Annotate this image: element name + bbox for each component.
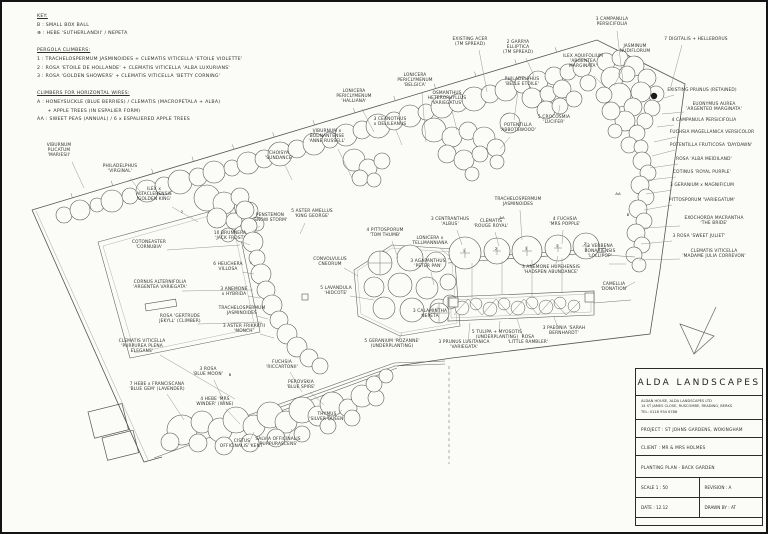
leader-line [72,162,84,188]
plant-label: 3 ANEMONE HUPEHENSIS'HADSPEN ABUNDANCE' [522,264,580,275]
leader-line [248,296,260,298]
lawn-side-bed-blob [312,358,328,374]
plant-label: 2 GARRYAELLIPTICA(7M SPREAD) [503,39,533,55]
plot-boundary-left-inner [36,211,148,460]
client-field: CLIENT : MR & MRS HOLMES [636,438,762,456]
fence-post-ticks-tick [474,72,475,77]
corner-bed-blob [608,124,622,138]
north-arrow-head [680,324,714,354]
plant-label: 3 VERBENABONARIENSIS'LOLLIPOP' [585,243,616,259]
plant-label: 3 ANEMONEx HYBRIDA [220,286,247,297]
plant-label: EXISTING ACER(7M SPREAD) [453,36,488,47]
plant-label: CLEMATIS VITICELLA'PURPUREA PLENAELEGANS… [119,338,166,354]
espalier-post-left [449,298,458,307]
plant-label: 7 DIGITALIS + HELLEBORUS [664,36,728,42]
island-bed-plants-blob [364,277,384,297]
fence-post-ticks-tick [232,144,233,149]
top-border-bed-blob [101,190,123,212]
plant-label: COTONEASTER'CORNUBIA' [132,239,166,250]
key-line: KEY: [37,13,243,22]
leader-line [396,130,402,145]
leader-line [479,50,487,92]
plant-label: CLEMATIS VITICELLA'MADAME JULIA CORREVON… [682,248,745,259]
plant-label: 3 ROSA'BLUE MOON' [193,366,223,377]
title-block: ALDA LANDSCAPES ALDAN HOUSE, ALDA LANDSC… [635,368,763,526]
plant-label: 5 TULIPA + MYOSOTIS(UNDERPLANTING) [472,329,522,340]
shrub-cluster-c-blob [465,167,479,181]
plant-label: 3 GERANIUM x MAGNIFICUM [670,182,734,188]
key-line: PERGOLA CLIMBERS: [37,47,243,56]
key-line: A : HONEYSUCKLE (BLUE BERRIES) / CLEMATI… [37,99,243,108]
shrub-cluster-d-blob [580,75,596,91]
shrub-cluster-b-blob [374,153,390,169]
drawn-by-field: DRAWN BY : AT [699,498,763,517]
key-line: 2 : ROSA 'ETOILE DE HOLLANDE' + CLEMATIS… [37,65,243,74]
key-line: B : SMALL BOX BALL [37,22,243,31]
plant-label: 5 CROCOSMIA'LUCIFER' [538,114,570,125]
plant-label: TRACHELOSPERMUMJASMINOIDES [494,196,542,207]
company-address: ALDAN HOUSE, ALDA LANDSCAPES LTD 14 ST J… [636,396,762,420]
espalier-bed-shrubs-blob [568,300,580,312]
drawing-title-field: PLANTING PLAN - BACK GARDEN [636,456,762,478]
leader-line [670,45,682,90]
leader-line [654,137,676,142]
top-border-bed-blob [203,161,225,183]
leader-line [167,394,184,420]
plant-label: 5 LAVANDULA'HIDCOTE' [320,285,352,296]
key-line: CLIMBERS FOR HORIZONTAL WIRES: [37,90,243,99]
title-block-footer [636,518,762,525]
leader-line [652,150,675,156]
leader-line [160,355,235,399]
key-line: ⊕ : HEBE 'SUTHERLANDII' / NEPETA [37,30,243,39]
plant-label: 3 ROSA 'SWEET JULIET' [673,233,726,239]
corner-triangle-bed-blob [379,369,393,383]
plant-label: ROSA 'GERTRUDEJEKYLL' (CLIMBER) [158,313,201,324]
key-line: + APPLE TREES (IN ESPALIER FORM) [37,108,243,117]
bench [145,299,177,311]
plant-label: VIBURNUMPLICATUM'MARIESII' [47,142,72,158]
shrub-cluster-b-blob [367,173,381,187]
corner-triangle-bed-blob [344,410,360,426]
leader-line [639,259,680,260]
plant-label: CONVOLVULUSCNEORUM [313,256,347,267]
plant-label: CHOISYA'SUNDANCE' [265,150,293,161]
plant-label: 5 ASTER AMELLUS'KING GEORGE' [291,208,333,219]
espalier-bed-shrubs-blob [554,297,566,309]
key-line: 3 : ROSA 'GOLDEN SHOWERS' + CLEMATIS VIT… [37,73,243,82]
island-bed-plants-blob [440,274,456,290]
key-line [37,82,243,91]
top-border-bed-blob [168,170,192,194]
top-border-bed-blob [70,200,90,220]
leader-line [657,125,674,127]
project-field: PROJECT : ST JOHNS GARDENS, WOKINGHAM [636,420,762,438]
leader-line [167,245,240,250]
plant-label: 3 CEANOTHUSx DELILEANUS [374,116,407,127]
plant-label: 3 CENTRANTHUS'ALBUS' [431,216,469,227]
plant-label: 4 PITTOSPORUM'TOM THUMB' [366,227,403,238]
leader-line [664,95,674,98]
date-field: DATE : 12.12 [636,498,699,517]
top-border-bed-blob [56,207,72,223]
espalier-bed-shrubs-blob [526,297,538,309]
plant-label: EXOCHORDA MACRANTHA'THE BRIDE' [684,215,743,226]
corner-bed-blob [596,87,612,103]
key-line: 1 : TRACHELOSPERMUM JASMINOIDES + CLEMAT… [37,56,243,65]
scale-revision-row: SCALE 1 : 50 REVISION : A [636,478,762,498]
plant-label: 4 FUCHSIA'MRS POPPLE' [549,216,580,227]
espalier-bed-shrubs-blob [483,302,497,316]
plant-label: PEROVSKIA'BLUE SPIRE' [287,379,316,390]
plant-label: LONICERA xTELLMANNIANA [411,235,447,246]
espalier-post-right [585,293,594,302]
fence-post-ticks-tick [192,157,193,162]
shrub-cluster-a-blob [207,208,227,228]
leader-line [285,165,292,180]
company-address-line3: TEL: 0118 934 6788 [641,410,757,415]
leader-line [526,58,534,76]
plant-marker: AA [615,191,621,196]
fence-post-ticks-tick [353,108,354,113]
leader-line [257,316,268,319]
leader-line [300,223,305,234]
shrub-cluster-c-blob [490,155,504,169]
plant-label: 7 HEBE x FRANCISCANA'BLUE GEM' (LAVENDER… [129,381,185,392]
plant-label: 5 GERANIUM 'ROZANNE'(UNDERPLANTING) [364,338,419,349]
espalier-link-right [594,300,631,303]
corner-triangle-bed-blob [189,434,207,452]
plant-label: PENSTEMON'SNOW STORM' [253,212,288,223]
fence-post-ticks-tick [152,169,153,174]
plant-label: EUONYMUS AUREA'ARGENTEO MARGINATA' [686,101,742,112]
plant-label: SALVIA OFFICINALIS'PURPURASCENS' [255,436,300,447]
corner-bed-blob [602,102,620,120]
plant-label: 4 CAMPANULA PERSICIFOLIA [672,117,737,123]
espalier-bed-shrubs-blob [511,301,525,315]
plant-label: 3 PRUNUS LUSITANICA'VARIEGATA' [438,339,489,350]
fence-post-ticks-tick [434,84,435,89]
plant-label: EXISTING PRUNUS (RETAINED) [667,87,736,93]
plant-label: JASMINUMNUDIFLORUM [620,43,651,54]
leader-line [260,334,274,338]
plant-label: PHILADELPHUS'VIRGINAL' [103,163,138,174]
corner-triangle-bed-blob [368,390,384,406]
plant-label: COTINUS 'ROYAL PURPLE' [673,169,731,175]
plant-label: LONICERAPERICLYMENUM'BELGICA' [397,72,432,88]
plant-marker: B [229,372,232,377]
plant-label: 6 HEUCHERAVILLOSA [213,261,242,272]
shrub-cluster-d-blob [566,91,582,107]
existing-tree-dot [651,93,657,99]
island-bed-plants-blob [416,277,438,299]
fence-post-ticks-tick [71,193,72,198]
plant-label: POTENTILLA'ABBOTSWOOD' [500,122,536,133]
company-name: ALDA LANDSCAPES [636,369,762,396]
plant-label: POTENTILLA FRUTICOSA 'DAYDAWN' [670,142,752,148]
lawn-side-bed-blob [236,201,254,219]
shrub-cluster-b-blob [352,170,368,186]
drawing-sheet: AAAABB2112312VIBURNUMPLICATUM'MARIESII'P… [0,0,768,534]
plant-label: LONICERAPERICLYMENUM'HALLIANA' [336,88,371,104]
plant-label: 3 PAEONIA 'SARAHBERNHARDT' [543,325,586,336]
espalier-bed-shrubs-blob [539,300,553,314]
fence-post-ticks-tick [555,47,556,52]
plant-marker: B [627,212,630,217]
plant-label: 3 AGAPANTHUS'PETER PAN' [410,258,445,269]
island-bed-plants-blob [388,273,412,297]
scale-field: SCALE 1 : 50 [636,478,699,497]
plant-label: 10 BRUNNERA'JACK FROST' [214,230,246,241]
plant-label: FUCHSIA'RICCARTONII' [266,359,298,370]
plan-key: KEY:B : SMALL BOX BALL⊕ : HEBE 'SUTHERLA… [37,13,243,125]
plant-label: OSMANTHUSHETEROPHYLLUS'VARIEGATUS' [428,90,467,106]
plant-marker: 2 [181,209,184,214]
fence-post-ticks-tick [111,181,112,186]
plant-label: 3 CAMPANULAPERSICIFOLIA [596,16,628,27]
leader-line [344,268,358,276]
plant-label: CORNUS ALTERNIFOLIA'ARGENTEA VARIEGATA' [133,279,187,290]
fence-post-ticks-tick [515,59,516,64]
key-line [37,39,243,48]
fence-post-ticks-tick [394,96,395,101]
fence-post-ticks-tick [313,120,314,125]
plant-label: PITTOSPORUM 'VARIEGATUM' [669,197,735,203]
shrub-cluster-c-blob [487,139,505,157]
leader-line [172,207,198,222]
date-drawn-row: DATE : 12.12 DRAWN BY : AT [636,498,762,518]
corner-triangle-bed-blob [161,433,179,451]
leader-line [520,210,522,240]
plant-label: VIBURNUM xBODNANTENSE'ANNE RUSSELL' [309,128,346,144]
plant-label: TRACHELOSPERMUMJASMINOIDES [218,305,266,316]
plant-label: PHILADELPHUS'BELLE ETOILE' [505,76,540,87]
island-bed-plants-blob [373,297,395,319]
north-arrow-shaft [694,307,716,354]
leader-line [392,241,398,258]
shrub-cluster-c-blob [438,145,456,163]
revision-field: REVISION : A [699,478,763,497]
key-line: AA : SWEET PEAS (ANNUAL) / 6 x ESPALIERE… [37,116,243,125]
shrub-cluster-c-blob [472,146,488,162]
plant-label: FUCHSIA MAGELLANICA VERSICOLOR [670,129,755,135]
lawn-corner-post [302,294,308,300]
plant-label: CAMELLIA'DONATION' [601,281,628,292]
fence-post-ticks-tick [273,132,274,137]
plant-label: ROSA 'ALBA MEIDILAND' [676,156,732,162]
plant-label: 4 HEBE 'MRSWINDER' (WINE) [196,396,233,407]
